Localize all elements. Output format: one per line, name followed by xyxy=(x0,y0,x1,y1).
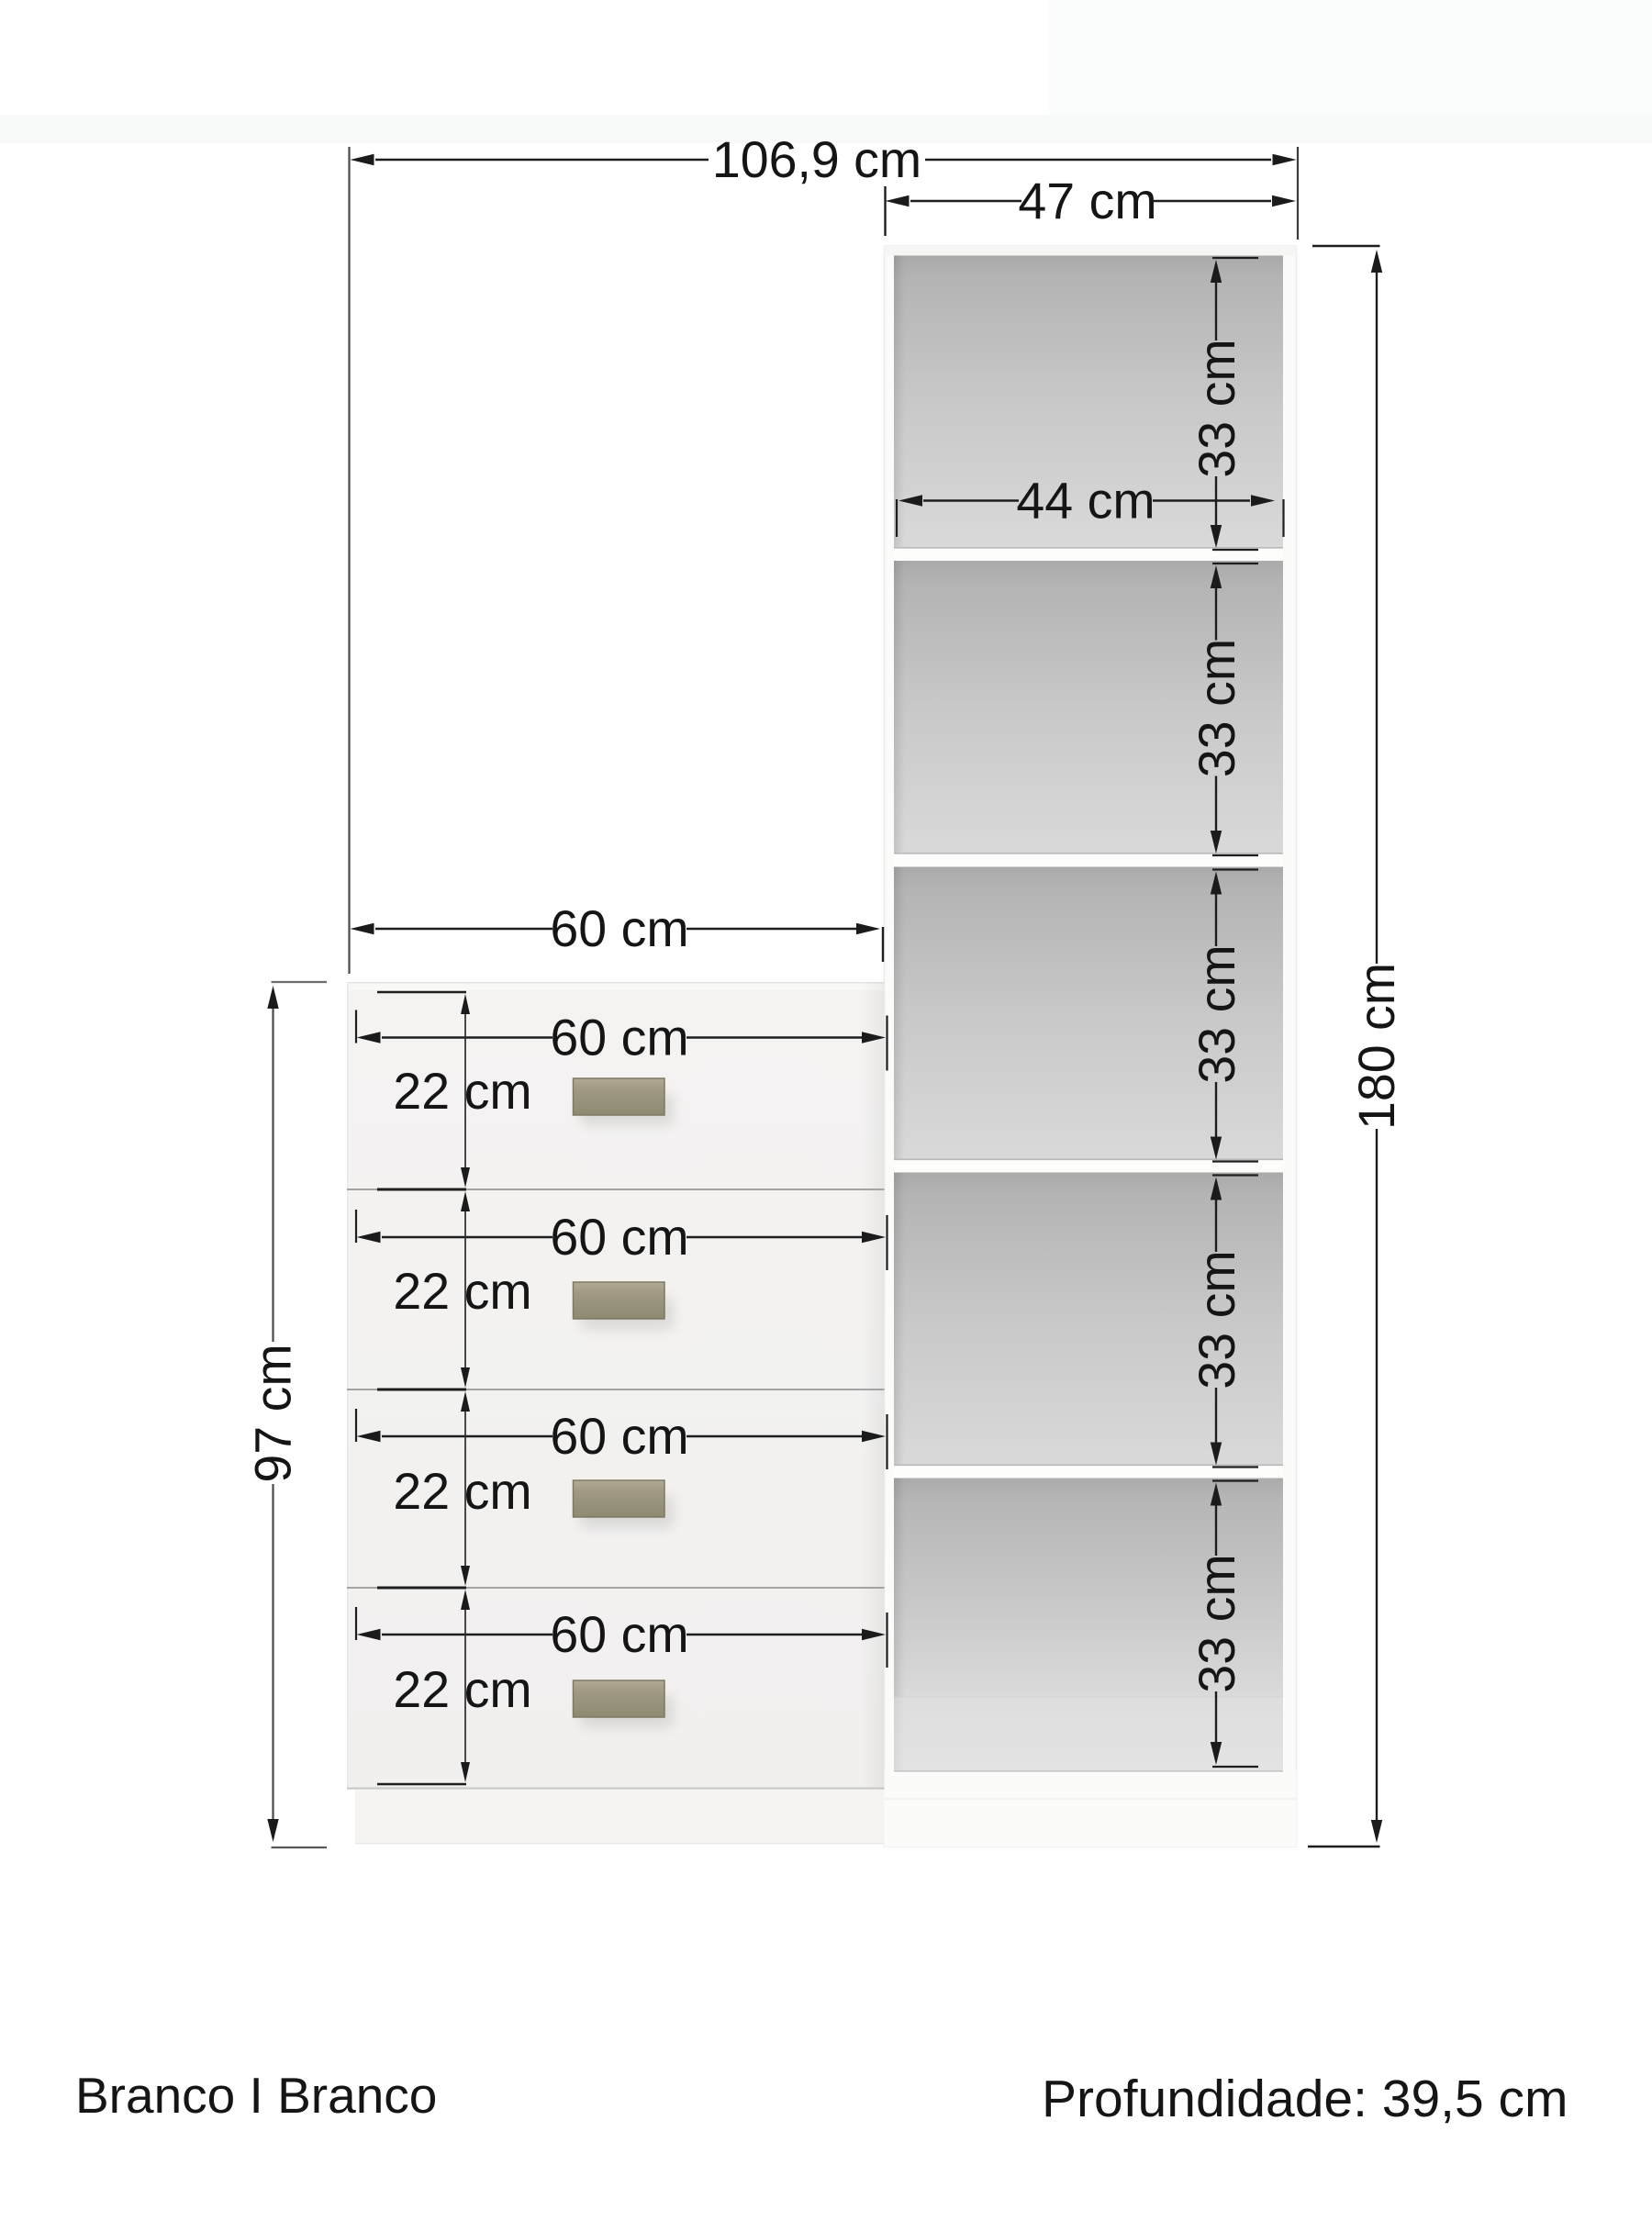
svg-text:33 cm: 33 cm xyxy=(1189,639,1245,777)
svg-text:44 cm: 44 cm xyxy=(1016,473,1155,530)
svg-text:97 cm: 97 cm xyxy=(245,1344,302,1482)
svg-text:180 cm: 180 cm xyxy=(1348,963,1405,1130)
svg-text:33 cm: 33 cm xyxy=(1189,339,1245,477)
svg-text:22 cm: 22 cm xyxy=(393,1463,531,1520)
svg-text:60 cm: 60 cm xyxy=(550,900,688,957)
svg-text:106,9 cm: 106,9 cm xyxy=(712,131,921,188)
svg-text:60 cm: 60 cm xyxy=(550,1606,688,1663)
svg-text:33 cm: 33 cm xyxy=(1189,944,1245,1083)
svg-text:47 cm: 47 cm xyxy=(1018,173,1156,229)
svg-text:Profundidade: 39,5 cm: Profundidade: 39,5 cm xyxy=(1042,2070,1568,2128)
svg-text:22 cm: 22 cm xyxy=(393,1661,531,1718)
svg-text:60 cm: 60 cm xyxy=(550,1408,688,1465)
svg-text:60 cm: 60 cm xyxy=(550,1010,688,1066)
svg-text:33 cm: 33 cm xyxy=(1189,1250,1245,1389)
svg-text:22 cm: 22 cm xyxy=(393,1263,531,1320)
svg-text:33 cm: 33 cm xyxy=(1189,1554,1245,1692)
svg-text:Branco I Branco: Branco I Branco xyxy=(75,2067,437,2124)
svg-text:60 cm: 60 cm xyxy=(550,1209,688,1266)
svg-text:22 cm: 22 cm xyxy=(393,1063,531,1120)
